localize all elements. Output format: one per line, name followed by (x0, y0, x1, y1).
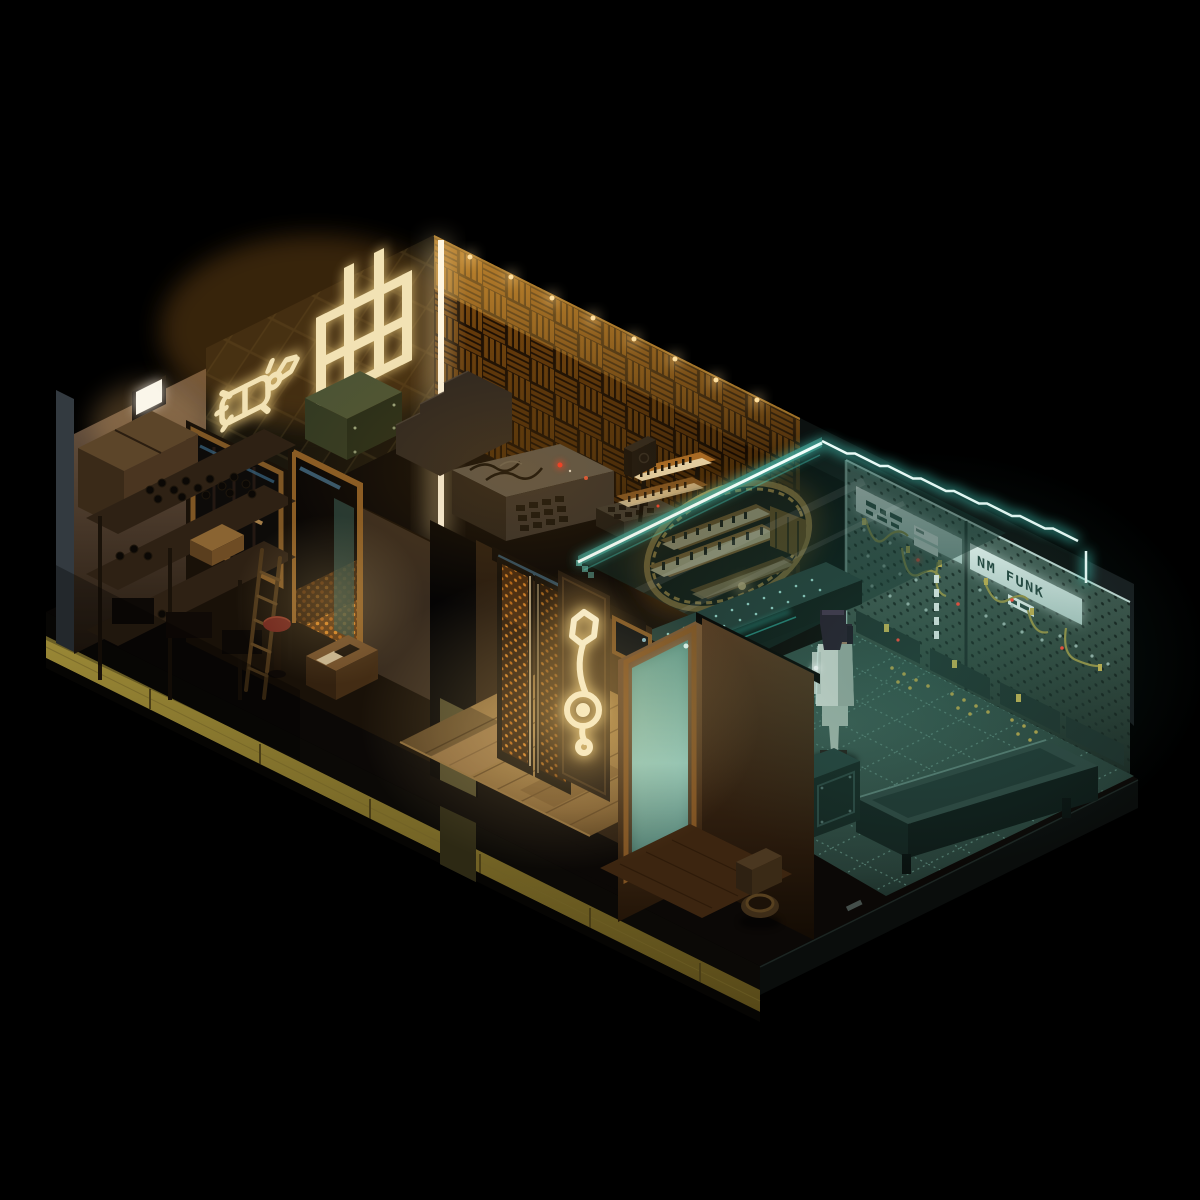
voxel-diorama-scene: NM FUNK (0, 0, 1200, 1200)
scene-canvas: NM FUNK (0, 0, 1200, 1200)
